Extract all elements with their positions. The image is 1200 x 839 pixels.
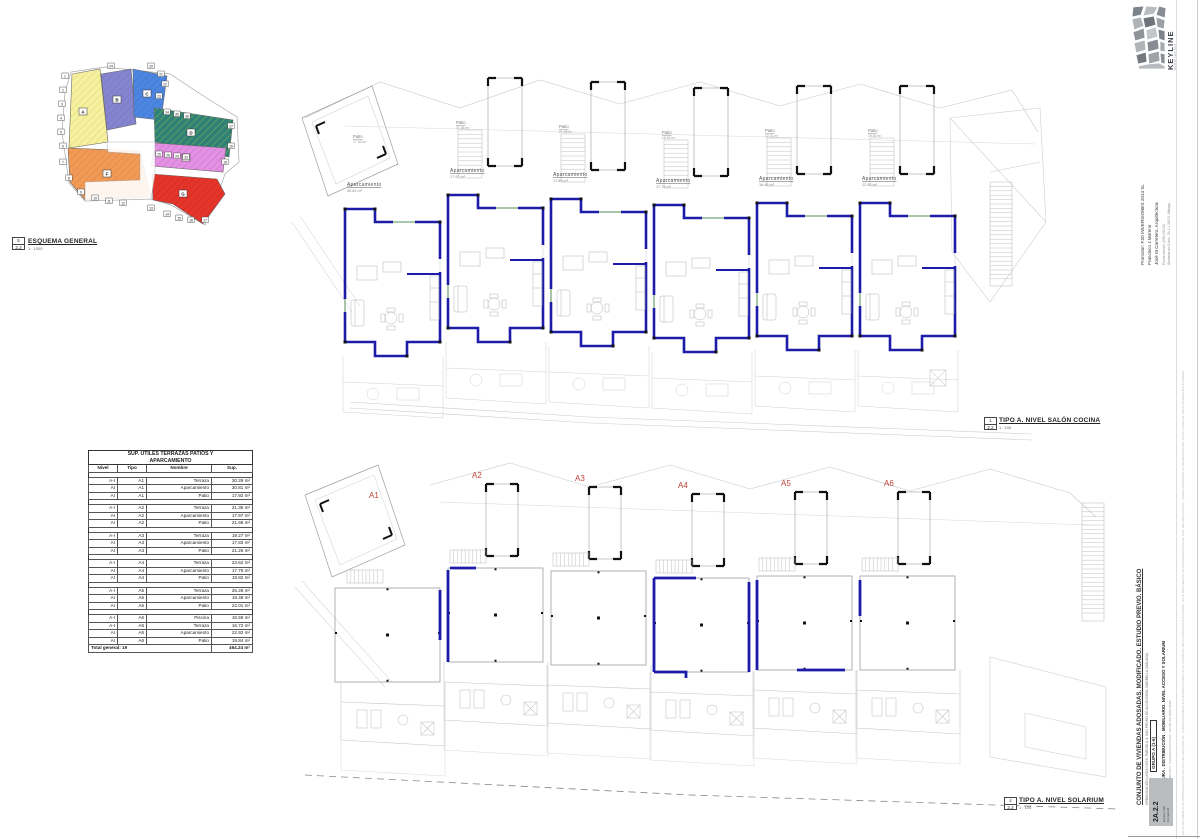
svg-text:13: 13 xyxy=(149,206,153,210)
svg-text:1: 1 xyxy=(64,74,66,78)
esquema-general-diagram: ABCDEFG123456789101112131415161718192021… xyxy=(55,62,245,237)
drawing-note: E 1:100 . COTAS EN METROS . SUPERFICIES … xyxy=(1168,587,1172,805)
areas-table: SUP. ÚTILES TERRAZAS PATIOS YAPARCAMIENT… xyxy=(88,450,253,653)
table-row: A-IA3Terraza19.27 m² xyxy=(89,532,253,540)
esquema-tag-number: 5 xyxy=(13,238,24,245)
svg-text:17.92 m²: 17.92 m² xyxy=(353,140,367,144)
bottom-plan-unit-a1: A1 xyxy=(335,491,445,776)
svg-text:6: 6 xyxy=(62,144,64,148)
sheet-format: Formato A1 xyxy=(1166,782,1170,822)
svg-text:Patio: Patio xyxy=(765,128,775,133)
svg-text:Patio: Patio xyxy=(456,120,466,125)
svg-text:Aparcamiento: Aparcamiento xyxy=(347,182,381,188)
table-row: AIA4Patio18.82 m² xyxy=(89,575,253,583)
svg-text:33: 33 xyxy=(184,155,188,159)
svg-text:24: 24 xyxy=(109,64,113,68)
svg-text:22.01 m²: 22.01 m² xyxy=(765,134,779,138)
svg-text:Patio: Patio xyxy=(559,124,569,129)
esquema-plot-marker: 35 xyxy=(174,111,180,117)
drawing-sheet: { "accent": {"wall_blue": "#1c1ca8", "un… xyxy=(0,0,1200,839)
svg-text:36: 36 xyxy=(185,114,189,118)
table-col-header: Nombre xyxy=(147,465,212,473)
svg-text:4: 4 xyxy=(60,116,62,120)
svg-text:2: 2 xyxy=(62,88,64,92)
table-row: A-IA4Terraza23.62 m² xyxy=(89,560,253,568)
esquema-plot-marker: 8 xyxy=(66,175,72,181)
bottom-plan-unit-a4: A4 xyxy=(650,481,754,766)
esquema-zone-red: G xyxy=(152,174,225,224)
svg-text:26: 26 xyxy=(166,153,170,157)
svg-text:7: 7 xyxy=(62,160,64,164)
esquema-plot-marker: 34 xyxy=(164,109,170,115)
svg-text:15: 15 xyxy=(177,216,181,220)
promoter-line-3: José M Carretero. Arquitectura xyxy=(1154,75,1159,265)
svg-text:11: 11 xyxy=(107,199,111,203)
table-col-header: Sup. xyxy=(212,465,253,473)
promoter-line-2: Francisco J Moreno xyxy=(1147,75,1152,265)
svg-text:18.48 m²: 18.48 m² xyxy=(759,183,775,187)
svg-text:22.92 m²: 22.92 m² xyxy=(862,183,878,187)
svg-text:G: G xyxy=(181,192,185,197)
top-plan-unit-a4: Aparcamiento17.79 m²Patio18.82 m² xyxy=(652,88,752,414)
svg-text:3: 3 xyxy=(61,102,63,106)
svg-text:12: 12 xyxy=(121,201,125,205)
table-row: A-IA6Piscina16.59 m² xyxy=(89,615,253,623)
esquema-plot-marker: 23 xyxy=(156,93,162,99)
unit-label: A2 xyxy=(472,471,482,480)
table-row: AIA3Aparcamiento17.83 m² xyxy=(89,540,253,548)
top-plan-title: TIPO A. NIVEL SALÓN COCINA xyxy=(999,417,1100,424)
table-col-header: Nivel xyxy=(89,465,118,473)
table-total-row: Total general: 19464.24 m² xyxy=(89,645,253,653)
esquema-plot-marker: 36 xyxy=(184,113,190,119)
top-plan-scale: 1 : 100 xyxy=(999,425,1100,430)
esquema-plot-marker: 3 xyxy=(59,101,65,107)
svg-text:21.68 m²: 21.68 m² xyxy=(456,126,470,130)
svg-text:17.83 m²: 17.83 m² xyxy=(553,179,569,183)
esquema-plot-marker: 19 xyxy=(228,143,234,149)
bottom-plan-scale: 1 : 100 xyxy=(1019,805,1104,810)
sheet-bottom-border xyxy=(1128,836,1200,837)
top-plan-drawing: Aparcamiento30.81 m²Patio17.92 m²Aparcam… xyxy=(290,70,1050,442)
svg-text:8: 8 xyxy=(68,176,70,180)
svg-text:Aparcamiento: Aparcamiento xyxy=(862,176,896,182)
svg-text:Aparcamiento: Aparcamiento xyxy=(656,178,690,184)
table-row: AIA5Aparcamiento18.48 m² xyxy=(89,595,253,603)
esquema-plot-marker: 9 xyxy=(78,189,84,195)
svg-text:14: 14 xyxy=(165,212,169,216)
esquema-plot-marker: 16 xyxy=(188,217,194,223)
bottom-plan-unit-a5: A5 xyxy=(753,479,857,764)
esquema-ref-tag: 5 2.2 xyxy=(12,237,25,250)
svg-text:23: 23 xyxy=(157,94,161,98)
esquema-scale: 1 : 1000 xyxy=(28,246,97,251)
unit-label: A5 xyxy=(781,479,791,488)
sheet-right-border xyxy=(1197,0,1198,839)
bottom-plan-unit-a6: A6 xyxy=(856,479,960,764)
esquema-plot-marker: 7 xyxy=(60,159,66,165)
table-col-header: Tipo xyxy=(118,465,147,473)
svg-text:Patio: Patio xyxy=(662,130,672,135)
esquema-plot-marker: 14 xyxy=(164,211,170,217)
group-box: GRUPO A (1-6) xyxy=(1150,720,1157,772)
svg-text:19: 19 xyxy=(229,144,233,148)
drawing-title: ARQUITECTURA . DISTRIBUCIÓN . MOBILIARIO… xyxy=(1161,587,1166,805)
sheet-number-box: 2A.2.2 Escala 1:100 Formato A1 xyxy=(1149,778,1173,826)
bottom-plan-ref-tag: 4 2.2 xyxy=(1004,797,1017,810)
svg-text:30.81 m²: 30.81 m² xyxy=(347,189,363,193)
bottom-plan-unit-a2: A2 xyxy=(444,471,548,756)
esquema-plot-marker: 27 xyxy=(228,123,234,129)
svg-text:16: 16 xyxy=(189,218,193,222)
esquema-zone-purple: B xyxy=(101,69,136,130)
bottom-plan-unit-a3: A3 xyxy=(547,474,651,759)
svg-text:25: 25 xyxy=(157,152,161,156)
table-row: A-IA6Terraza16.72 m² xyxy=(89,622,253,630)
edge-fine-print: ESTE DOCUMENTO ES PROPIEDAD INTELECTUAL … xyxy=(1181,35,1185,835)
esquema-plot-marker: 4 xyxy=(58,115,64,121)
esquema-plot-marker: 15 xyxy=(176,215,182,221)
unit-label: A1 xyxy=(369,491,379,500)
svg-text:17.79 m²: 17.79 m² xyxy=(656,185,672,189)
esquema-plot-marker: 25 xyxy=(156,151,162,157)
top-plan-unit-a1: Aparcamiento30.81 m²Patio17.92 m² xyxy=(343,134,443,418)
bottom-plan-title: TIPO A. NIVEL SOLARIUM xyxy=(1019,797,1104,804)
table-row: A-IA2Terraza21.35 m² xyxy=(89,505,253,513)
svg-text:17: 17 xyxy=(203,218,207,222)
top-plan-unit-a6: Aparcamiento22.92 m²Patio19.84 m² xyxy=(858,86,958,412)
table-row: AIA2Aparcamiento17.97 m² xyxy=(89,512,253,520)
esquema-plot-marker: 6 xyxy=(60,143,66,149)
esquema-tag-sheet: 2.2 xyxy=(13,245,24,251)
svg-text:21.26 m²: 21.26 m² xyxy=(559,130,573,134)
titleblock-address-line: Alameda de Colón, 29 1-1 29001 Málaga xyxy=(1167,77,1171,265)
top-plan-tag-sheet: 2.2 xyxy=(985,425,996,431)
esquema-plot-marker: 1 xyxy=(62,73,68,79)
svg-text:Aparcamiento: Aparcamiento xyxy=(553,172,587,178)
esquema-title: ESQUEMA GENERAL xyxy=(28,238,97,245)
esquema-plot-marker: 28 xyxy=(174,153,180,159)
svg-text:22: 22 xyxy=(163,82,167,86)
promoter-line-1: Promotor: FJD INVERSIONES 2014 SL xyxy=(1140,75,1145,265)
table-row: AIA1Aparcamiento30.81 m² xyxy=(89,485,253,493)
table-row: AIA1Patio17.92 m² xyxy=(89,492,253,500)
esquema-plot-marker: 26 xyxy=(165,152,171,158)
esquema-plot-marker: 5 xyxy=(58,129,64,135)
table-row: AIA4Aparcamiento17.79 m² xyxy=(89,567,253,575)
svg-text:17.97 m²: 17.97 m² xyxy=(450,175,466,179)
esquema-plot-marker: 22 xyxy=(162,81,168,87)
esquema-plot-marker: 20 xyxy=(148,63,154,69)
sheet-code: 2A.2.2 xyxy=(1153,782,1160,822)
table-title: SUP. ÚTILES TERRAZAS PATIOS YAPARCAMIENT… xyxy=(89,451,253,465)
table-row: AIA3Patio21.26 m² xyxy=(89,547,253,555)
unit-label: A6 xyxy=(884,479,894,488)
project-title: CONJUNTO DE VIVIENDAS ADOSADAS. MODIFICA… xyxy=(1137,560,1143,805)
table-row: A-IA5Terraza25.28 m² xyxy=(89,587,253,595)
svg-text:19.84 m²: 19.84 m² xyxy=(868,134,882,138)
svg-text:34: 34 xyxy=(165,110,169,114)
esquema-plot-marker: 13 xyxy=(148,205,154,211)
esquema-plot-marker: 12 xyxy=(120,200,126,206)
table-row: A-IA1Terraza30.29 m² xyxy=(89,477,253,485)
esquema-plot-marker: 11 xyxy=(106,198,112,204)
bottom-plan-tag-number: 4 xyxy=(1005,798,1016,805)
svg-text:Patio: Patio xyxy=(353,134,363,139)
esquema-plot-marker: 21 xyxy=(158,71,164,77)
svg-text:F: F xyxy=(106,172,109,177)
svg-text:Patio: Patio xyxy=(868,128,878,133)
svg-text:18.82 m²: 18.82 m² xyxy=(662,136,676,140)
svg-text:Aparcamiento: Aparcamiento xyxy=(759,176,793,182)
adjacent-building xyxy=(302,86,398,196)
table-row: AIA2Patio21.68 m² xyxy=(89,520,253,528)
adjacent-parcel xyxy=(950,108,1046,302)
svg-text:35: 35 xyxy=(175,112,179,116)
adjacent-building xyxy=(305,465,405,577)
esquema-plot-marker: 10 xyxy=(92,195,98,201)
esquema-plot-marker: 17 xyxy=(202,217,208,223)
top-plan-tag-number: 1 xyxy=(985,418,996,425)
svg-text:Aparcamiento: Aparcamiento xyxy=(450,168,484,174)
top-plan-unit-a3: Aparcamiento17.83 m²Patio21.26 m² xyxy=(549,82,649,408)
esquema-plot-marker: 24 xyxy=(108,63,114,69)
svg-text:9: 9 xyxy=(80,190,82,194)
titleblock-divider xyxy=(1176,0,1177,839)
top-plan-ref-tag: 1 2.2 xyxy=(984,417,997,430)
svg-text:20: 20 xyxy=(149,64,153,68)
unit-label: A3 xyxy=(575,474,585,483)
bottom-plan-drawing: A1A2A3A4A5A6 xyxy=(290,455,1120,817)
svg-text:21: 21 xyxy=(159,72,163,76)
esquema-plot-marker: 2 xyxy=(60,87,66,93)
table-row: AIA5Patio22.01 m² xyxy=(89,602,253,610)
table-row: AIA6Patio19.84 m² xyxy=(89,637,253,645)
unit-label: A4 xyxy=(678,481,688,490)
bottom-plan-tag-sheet: 2.2 xyxy=(1005,805,1016,811)
svg-text:27: 27 xyxy=(229,124,233,128)
adjacent-parcel xyxy=(990,503,1106,777)
svg-text:5: 5 xyxy=(60,130,62,134)
top-plan-unit-a5: Aparcamiento18.48 m²Patio22.01 m² xyxy=(755,86,855,412)
esquema-plot-marker: 18 xyxy=(222,159,228,165)
esquema-plot-marker: 33 xyxy=(183,154,189,160)
titleblock-date-line: Fecha edición (29/10/2015) xyxy=(1162,77,1166,265)
table-row: AIA6Aparcamiento22.92 m² xyxy=(89,630,253,638)
svg-text:18: 18 xyxy=(223,160,227,164)
keyline-logo-mosaic xyxy=(1132,6,1166,70)
svg-text:28: 28 xyxy=(175,154,179,158)
top-plan-unit-a2: Aparcamiento17.97 m²Patio21.68 m² xyxy=(446,78,546,404)
svg-text:10: 10 xyxy=(93,196,97,200)
project-subtitle: URBANIZACIÓN LINDA VISTA. PARCELA 4. SAN… xyxy=(1145,560,1149,805)
